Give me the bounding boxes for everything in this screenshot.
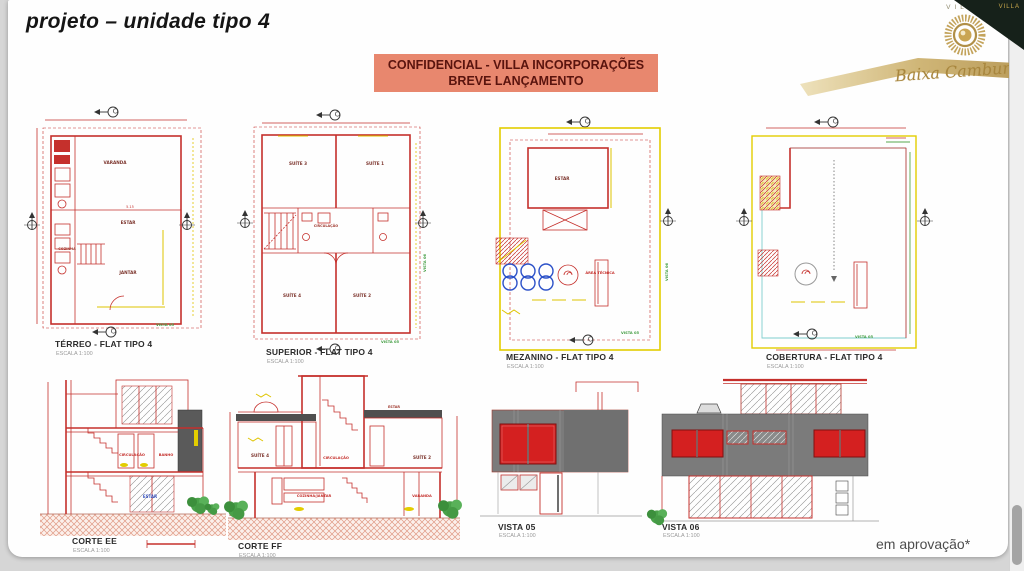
terreo-scale: ESCALA 1:100: [56, 351, 93, 357]
room-label-estar: ESTAR: [143, 494, 157, 499]
room-label-suite2: SUÍTE 2: [413, 455, 431, 460]
section-marker-icon: [237, 210, 253, 228]
superior-scale: ESCALA 1:100: [267, 359, 304, 365]
scrollbar-track[interactable]: [1009, 0, 1024, 571]
room-label-suite1: SUÍTE 1: [366, 161, 384, 166]
corte-ee-drawing: CIRCULAÇÃO BANHO ESTAR: [38, 368, 233, 540]
room-label-circulacao: CIRCULAÇÃO: [119, 452, 145, 457]
banner-line2: BREVE LANÇAMENTO: [448, 73, 583, 89]
banner-line1: CONFIDENCIAL - VILLA INCORPORAÇÕES: [388, 57, 644, 73]
vista-marker: VISTA 06: [665, 263, 669, 281]
bush-icon: [205, 503, 220, 515]
room-label-suite3: SUÍTE 3: [289, 161, 307, 166]
room-label-area-tecnica: ÁREA TÉCNICA: [585, 270, 615, 275]
corte-ff-scale: ESCALA 1:100: [239, 553, 276, 559]
terreo-caption: TÉRREO - FLAT TIPO 4: [55, 339, 152, 349]
corte-ee-caption: CORTE EE: [72, 536, 117, 546]
section-marker-icon: [24, 212, 40, 230]
bush-icon: [438, 500, 462, 519]
vista-marker: VISTA 05: [621, 331, 639, 335]
confidential-banner: CONFIDENCIAL - VILLA INCORPORAÇÕES BREVE…: [374, 54, 658, 92]
bush-icon: [224, 501, 248, 520]
section-marker-icon: [415, 210, 431, 228]
vista-marker: VISTA 06: [423, 254, 427, 272]
section-marker-icon: [793, 329, 817, 339]
page-title: projeto – unidade tipo 4: [26, 10, 270, 34]
room-label-estar: ESTAR: [555, 176, 571, 181]
vista-06-scale: ESCALA 1:100: [663, 533, 700, 539]
vista-05-caption: VISTA 05: [498, 522, 536, 532]
room-label-circulacao: CIRCULAÇÃO: [323, 455, 349, 460]
corte-ff-drawing: SUÍTE 4 CIRCULAÇÃO ESTAR SUÍTE 2 COZINHA…: [224, 366, 466, 548]
cobertura-plan-drawing: VISTA 05: [736, 112, 932, 368]
mezanino-plan-drawing: ESTAR ÁREA TÉCNICA VISTA 05 VISTA 06: [488, 112, 678, 368]
cobertura-scale: ESCALA 1:100: [767, 364, 804, 370]
room-label-varanda: VARANDA: [104, 160, 128, 165]
section-marker-icon: [92, 327, 116, 337]
corte-ff-caption: CORTE FF: [238, 541, 282, 551]
room-label-varanda: VARANDA: [412, 494, 432, 498]
room-label-suite2: SUÍTE 2: [353, 293, 371, 298]
superior-caption: SUPERIOR - FLAT TIPO 4: [266, 347, 373, 357]
mezanino-scale: ESCALA 1:100: [507, 364, 544, 370]
section-marker-icon: [660, 208, 676, 226]
section-marker-icon: [736, 208, 752, 226]
terreo-plan-drawing: 5.15 VARANDA ESTAR COZINHA JANTAR VISTA …: [15, 98, 215, 348]
corte-ee-scale: ESCALA 1:100: [73, 548, 110, 554]
scale-bar: [145, 539, 197, 549]
vista-marker: VISTA 05: [855, 335, 873, 339]
scrollbar-thumb[interactable]: [1012, 505, 1022, 565]
vista-marker: VISTA 05: [381, 340, 399, 344]
room-label-estar: ESTAR: [121, 220, 137, 225]
equipment-circles: [503, 264, 553, 290]
vista-marker: VISTA 05: [156, 323, 174, 327]
mezanino-caption: MEZANINO - FLAT TIPO 4: [506, 352, 614, 362]
ground-hatch: [40, 514, 226, 536]
room-label-estar: ESTAR: [388, 405, 400, 409]
superior-plan-drawing: SUÍTE 3 SUÍTE 1 CIRCULAÇÃO SUÍTE 4 SUÍTE…: [238, 103, 430, 359]
room-label-jantar: JANTAR: [118, 270, 137, 275]
vista-05-drawing: [480, 376, 642, 526]
vista-06-caption: VISTA 06: [662, 522, 700, 532]
cobertura-caption: COBERTURA - FLAT TIPO 4: [766, 352, 883, 362]
document-viewer: projeto – unidade tipo 4 CONFIDENCIAL - …: [0, 0, 1024, 571]
room-label-cozinha: COZINHA: [58, 247, 76, 251]
ground-hatch: [228, 518, 460, 540]
room-label-circulacao: CIRCULAÇÃO: [314, 223, 338, 228]
corner-brand-label: VILLA: [999, 4, 1020, 10]
room-label-suite4: SUÍTE 4: [251, 453, 269, 458]
room-label-cozinha-jantar: COZINHA/JANTAR: [297, 494, 332, 498]
room-label-banho: BANHO: [159, 453, 174, 457]
vista-05-scale: ESCALA 1:100: [499, 533, 536, 539]
approval-note: em aprovação*: [876, 536, 970, 552]
room-label-suite4: SUÍTE 4: [283, 293, 301, 298]
vista-06-drawing: [653, 373, 879, 525]
section-marker-icon: [917, 208, 933, 226]
dim-label: 5.15: [126, 205, 134, 209]
